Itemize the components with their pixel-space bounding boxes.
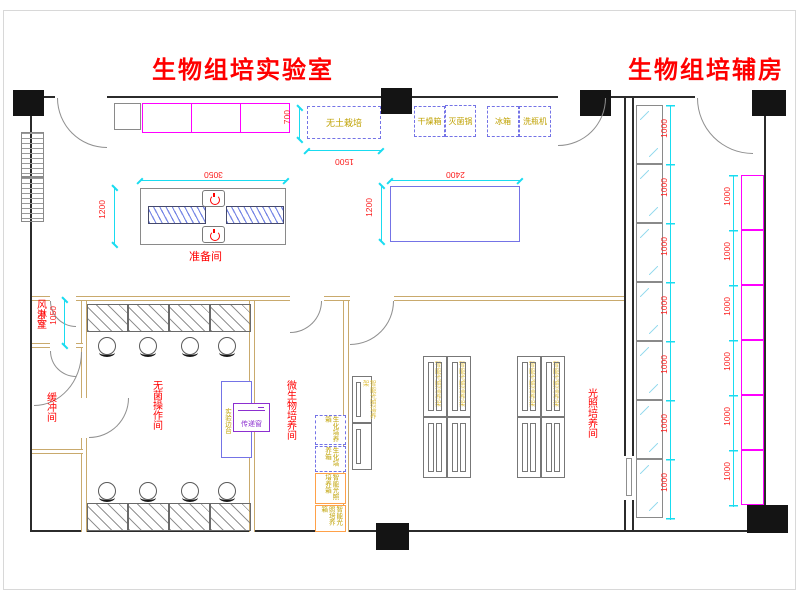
dimension-1200-shower: 1200 [36,310,46,329]
bio-incubator-label: 生化培养箱 [323,416,338,444]
aux-cabinet [741,450,764,505]
culture-rack: 智能光照培养架 [541,356,565,417]
light-incubator-box: 智能光照培养箱 [315,505,346,532]
sterilizer-box: 灭菌锅 [445,105,476,137]
culture-rack [447,417,471,478]
structural-column-top-right [752,90,786,116]
fridge-box: 冰箱 [487,106,519,137]
micro-room-label: 微生物培养间 [284,380,296,440]
corner-cabinet [114,103,141,130]
dimension-1000: 1000 [722,187,732,206]
bio-incubator-box: 生化培养箱 [315,446,346,472]
dimension-700: 700 [282,110,292,124]
stool [181,337,199,355]
aux-cabinet [741,340,764,395]
soilless-culture-label: 无土栽培 [326,116,362,129]
dimension-2400: 2400 [446,170,465,180]
clean-bench [210,304,251,332]
drying-oven-box: 干燥箱 [414,106,445,137]
dimension-1050: 1050 [48,306,58,325]
soilless-culture-box: 无土栽培 [307,106,381,139]
clean-bench [87,304,128,332]
wall-cabinet-cell [191,103,241,133]
door-opening-sterile [80,398,88,438]
dimension-1000: 1000 [659,237,669,256]
dimension-1000: 1000 [659,473,669,492]
clean-bench [87,503,128,531]
side-bench-label: 实验边台 [223,408,230,434]
dimension-3050-wrap: 3050 [140,165,286,183]
bio-incubator-box: 生化培养箱 [315,415,346,445]
storage-rack [21,177,44,222]
dimension-1000: 1000 [659,178,669,197]
clean-bench [210,503,251,531]
light-room-label: 光照培养间 [585,388,597,438]
bottle-washer-label: 洗瓶机 [523,116,547,127]
prep-bench-right [226,206,284,224]
dimension-line-1200-prep [110,188,119,245]
clean-bench [169,503,210,531]
structural-column-top-left [13,90,44,116]
culture-rack-label: 智能光照培养架 [457,361,464,407]
clean-bench [128,304,169,332]
middle-table [390,186,520,242]
dimension-1000: 1000 [722,462,732,481]
culture-rack-label: 智能光照培养架 [361,380,375,422]
dimension-line-1000-right [729,175,738,507]
culture-rack [517,417,541,478]
dimension-3050: 3050 [204,170,223,180]
dimension-line-700 [295,108,304,140]
fridge-label: 冰箱 [495,116,511,127]
stool [218,482,236,500]
aux-cabinet [741,230,764,285]
clean-bench [128,503,169,531]
floor-plan-canvas: 生物组培实验室 生物组培辅房 无土栽培 [0,0,800,600]
stool [98,482,116,500]
dimension-line-1050 [60,300,69,346]
dimension-1500: 1500 [335,157,354,167]
wall-cabinet-row [142,103,290,133]
partition-buffer-bottom [32,449,83,454]
stool [139,482,157,500]
culture-rack-label: 智能光照培养架 [551,361,558,407]
prep-room-label: 准备间 [189,248,222,264]
stool [98,337,116,355]
aux-cabinet [741,175,764,230]
dimension-1000: 1000 [659,119,669,138]
culture-rack [352,423,372,470]
bio-incubator-label: 生化培养箱 [323,447,338,471]
dimension-1000: 1000 [659,296,669,315]
pass-through-window-label: 传递窗 [234,419,269,429]
culture-rack: 智能光照培养架 [447,356,471,417]
light-incubator-label: 智能光照培养箱 [323,474,338,503]
culture-rack: 智能光照培养架 [352,376,372,423]
dimension-1200-mid: 1200 [364,198,374,217]
partition-main-horizontal [32,296,624,301]
wall-cabinet-cell [142,103,192,133]
dimension-line-1200-mid [377,186,386,242]
culture-rack [423,417,447,478]
dimension-1500-wrap: 1500 [307,152,381,170]
lab-title: 生物组培实验室 [152,50,334,85]
aux-cabinet [741,395,764,450]
prep-bench-left [148,206,206,224]
dimension-1000: 1000 [659,414,669,433]
dimension-2400-wrap: 2400 [390,165,520,183]
dimension-1000: 1000 [659,355,669,374]
culture-rack-label: 智能光照培养架 [527,361,534,407]
stool [218,337,236,355]
clean-bench [169,304,210,332]
sink-top [202,190,225,207]
stool [139,337,157,355]
pass-through-window: 传递窗 [233,403,270,432]
structural-column-bottom-right [747,505,788,533]
sterile-room-label: 无菌操作间 [150,380,162,430]
buffer-room-label: 缓冲间 [44,392,56,422]
dimension-1000: 1000 [722,242,732,261]
aux-cabinet [741,285,764,340]
stool [181,482,199,500]
aux-room-title: 生物组培辅房 [628,50,784,85]
storage-rack [21,132,44,177]
dimension-1000: 1000 [722,407,732,426]
drying-oven-label: 干燥箱 [418,116,442,127]
dimension-1200-prep: 1200 [97,200,107,219]
light-incubator-label: 智能光照培养箱 [319,506,341,531]
structural-column-bottom-mid [376,523,409,550]
culture-rack: 智能光照培养架 [517,356,541,417]
door-leaf-separator [626,458,632,496]
bottle-washer-box: 洗瓶机 [519,106,551,137]
structural-column-top-mid [381,88,412,114]
culture-rack: 智能光照培养架 [423,356,447,417]
sink-bottom [202,226,225,243]
culture-rack-label: 智能光照培养架 [433,361,440,407]
culture-rack [541,417,565,478]
light-incubator-box: 智能光照培养箱 [315,473,346,504]
dimension-1000: 1000 [722,352,732,371]
sterilizer-label: 灭菌锅 [449,116,473,127]
dimension-1000: 1000 [722,297,732,316]
